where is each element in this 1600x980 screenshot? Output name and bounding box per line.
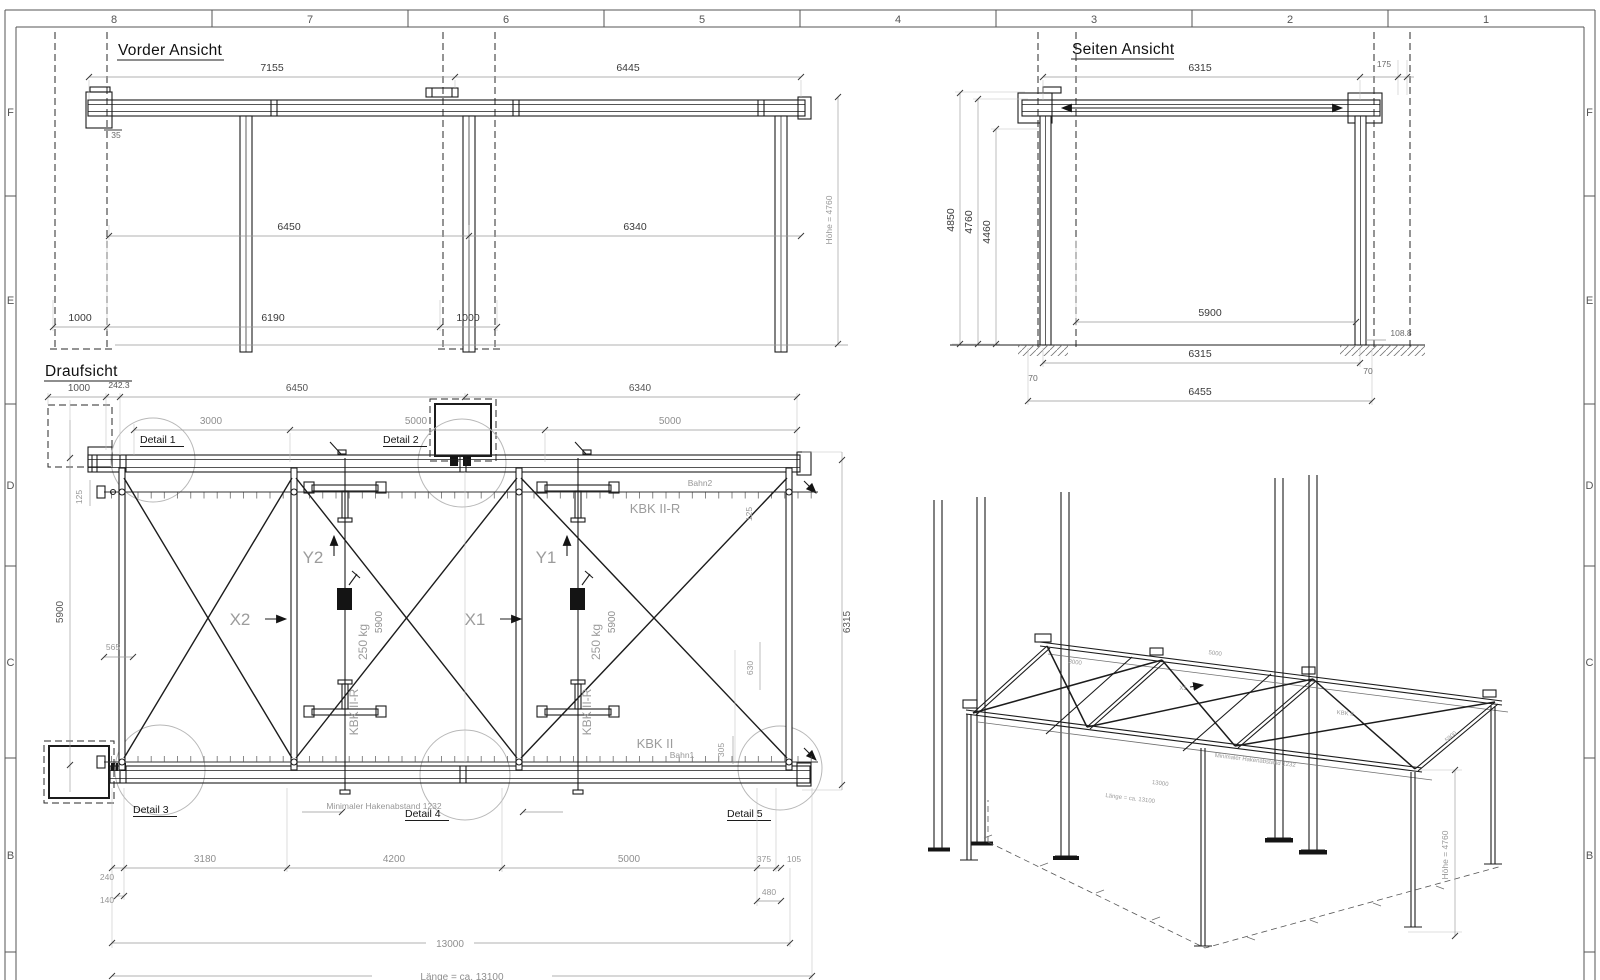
plan-load-1: 250 kg — [356, 624, 370, 660]
plan-dim-5900-mono1: 5900 — [374, 610, 385, 633]
plan-x-bracing — [124, 478, 787, 758]
side-dim-6315-top: 6315 — [1188, 62, 1212, 74]
side-building-columns — [1038, 32, 1410, 349]
plan-hook-note: Minimaler Hakenabstand 1232 — [326, 801, 442, 811]
cad-drawing: 8 7 6 5 4 3 2 1 F E D C B F E D C B Vord… — [0, 0, 1600, 980]
grid-row-c-right: C — [1586, 657, 1594, 669]
plan-dim-140: 140 — [100, 895, 114, 905]
front-dim-6450: 6450 — [277, 221, 301, 233]
plan-dim-240: 240 — [100, 872, 114, 882]
plan-kbk-mono-1: KBK II-R — [347, 688, 361, 735]
iso-micro-labels: 3000 5000 KBK II 13000 Länge = ca. 13100… — [1068, 650, 1459, 805]
iso-micro-haken: Minimaler Hakenabstand 1232 — [1214, 753, 1296, 769]
iso-micro-13000: 13000 — [1151, 780, 1169, 788]
plan-dim-5000b: 5000 — [659, 416, 682, 427]
side-dim-5900: 5900 — [1198, 307, 1222, 319]
grid-col-4: 4 — [895, 14, 901, 26]
detail-1-label: Detail 1 — [140, 434, 176, 446]
plan-dim-6340: 6340 — [629, 383, 652, 394]
side-dim-70-left: 70 — [1028, 373, 1038, 383]
plan-dim-480: 480 — [762, 887, 776, 897]
plan-dim-3180: 3180 — [194, 854, 217, 865]
plan-load-2: 250 kg — [589, 624, 603, 660]
side-bridge-beam — [1018, 87, 1382, 123]
front-runway-beam — [86, 87, 811, 128]
iso-dim-hoehe: Höhe = 4760 — [1440, 830, 1450, 879]
trolley-2 — [570, 588, 585, 610]
side-dim-4850: 4850 — [945, 208, 957, 232]
grid-row-d-right: D — [1586, 480, 1594, 492]
grid-col-3: 3 — [1091, 14, 1097, 26]
grid-row-f-left: F — [7, 107, 14, 119]
plan-dim-5900-mono2: 5900 — [607, 610, 618, 633]
plan-x2-label: X2 — [230, 610, 251, 629]
front-view-title: Vorder Ansicht — [118, 42, 223, 59]
front-dim-hoehe: Höhe = 4760 — [824, 195, 834, 244]
plan-dim-5000a: 5000 — [405, 416, 428, 427]
plan-view-title: Draufsicht — [45, 363, 118, 380]
detail-3-label: Detail 3 — [133, 804, 169, 816]
side-dim-70-right: 70 — [1363, 366, 1373, 376]
plan-girders — [119, 468, 792, 770]
grid-row-f-right: F — [1586, 107, 1593, 119]
iso-micro-laenge: Länge = ca. 13100 — [1105, 793, 1156, 805]
plan-dim-305: 305 — [716, 743, 726, 757]
plan-monorails: 250 kg 250 kg KBK II-R KBK II-R 5900 590… — [304, 458, 619, 794]
plan-dim-125-right: 125 — [744, 507, 754, 521]
front-dim-6445: 6445 — [616, 62, 640, 74]
iso-micro-kbk: KBK II — [1336, 710, 1354, 718]
plan-y1-label: Y1 — [536, 548, 557, 567]
front-dim-7155: 7155 — [260, 62, 284, 74]
plan-dim-5900-left: 5900 — [55, 600, 66, 623]
front-dim-1000-left: 1000 — [68, 312, 92, 324]
plan-dim-5000c: 5000 — [618, 854, 641, 865]
side-hatch-right — [1340, 345, 1425, 356]
plan-dim-13000: 13000 — [436, 939, 464, 950]
grid-col-6: 6 — [503, 14, 509, 26]
grid-col-2: 2 — [1287, 14, 1293, 26]
plan-dim-125-left: 125 — [74, 490, 84, 504]
front-dim-6190: 6190 — [261, 312, 285, 324]
side-view: Seiten Ansicht 6315 175 — [945, 32, 1425, 405]
plan-kbk2-label: KBK II — [637, 736, 674, 751]
side-dim-4760: 4760 — [963, 210, 975, 234]
iso-dimensions: Höhe = 4760 — [1408, 767, 1462, 939]
plan-kbk-mono-2: KBK II-R — [580, 688, 594, 735]
detail-2-label: Detail 2 — [383, 434, 419, 446]
trolley-1 — [337, 588, 352, 610]
iso-ground-lines — [984, 800, 1502, 948]
front-dim-35: 35 — [111, 130, 121, 140]
plan-dim-375: 375 — [757, 854, 771, 864]
iso-micro-5000: 5000 — [1208, 650, 1223, 658]
grid-col-8: 8 — [111, 14, 117, 26]
grid-row-d-left: D — [7, 480, 15, 492]
side-dim-4460: 4460 — [981, 220, 993, 244]
grid-col-5: 5 — [699, 14, 705, 26]
iso-micro-5900: 5900 — [1444, 730, 1459, 744]
grid-col-7: 7 — [307, 14, 313, 26]
side-dim-175: 175 — [1377, 59, 1391, 69]
plan-y2-label: Y2 — [303, 548, 324, 567]
front-dim-1000-mid: 1000 — [456, 312, 480, 324]
side-view-title: Seiten Ansicht — [1072, 41, 1175, 58]
grid-row-b-left: B — [7, 850, 14, 862]
plan-dim-1000: 1000 — [68, 383, 91, 394]
plan-dim-6315-right: 6315 — [842, 610, 853, 633]
side-dim-6455: 6455 — [1188, 386, 1212, 398]
plan-dim-565: 565 — [106, 642, 120, 652]
plan-bahn1-label: Bahn1 — [670, 750, 695, 760]
grid-row-c-left: C — [7, 657, 15, 669]
grid-row-e-right: E — [1586, 295, 1593, 307]
plan-dim-630: 630 — [745, 661, 755, 675]
plan-dim-laenge: Länge = ca. 13100 — [420, 972, 504, 980]
grid-col-1: 1 — [1483, 14, 1489, 26]
front-rail-joints — [271, 100, 764, 116]
front-dim-6340: 6340 — [623, 221, 647, 233]
plan-dim-6450: 6450 — [286, 383, 309, 394]
side-dim-108-8: 108.8 — [1390, 328, 1412, 338]
plan-view: Draufsicht — [44, 363, 853, 980]
plan-kbk2r-label: KBK II-R — [630, 501, 681, 516]
plan-dim-4200: 4200 — [383, 854, 406, 865]
detail-5-label: Detail 5 — [727, 808, 763, 820]
plan-bahn2-label: Bahn2 — [688, 478, 713, 488]
plan-dim-3000: 3000 — [200, 416, 223, 427]
front-columns — [236, 116, 791, 352]
plan-dimensions: 1000 242.3 6450 6340 3000 5000 5000 5900… — [45, 380, 853, 980]
iso-building-columns — [928, 475, 1327, 860]
front-view: Vorder Ansicht — [50, 32, 848, 352]
iso-view: Höhe = 4760 3000 5000 KBK II 13000 Länge… — [928, 475, 1508, 948]
iso-micro-x1: X1 — [1179, 686, 1187, 692]
drawing-sheet: 8 7 6 5 4 3 2 1 F E D C B F E D C B Vord… — [0, 0, 1600, 980]
plan-x1-label: X1 — [465, 610, 486, 629]
iso-micro-3000: 3000 — [1068, 659, 1083, 667]
front-building-columns — [50, 32, 500, 349]
plan-dim-105: 105 — [787, 854, 801, 864]
grid-row-e-left: E — [7, 295, 14, 307]
side-dim-6315-bottom: 6315 — [1188, 348, 1212, 360]
plan-dim-242-3: 242.3 — [108, 380, 130, 390]
grid-row-b-right: B — [1586, 850, 1593, 862]
